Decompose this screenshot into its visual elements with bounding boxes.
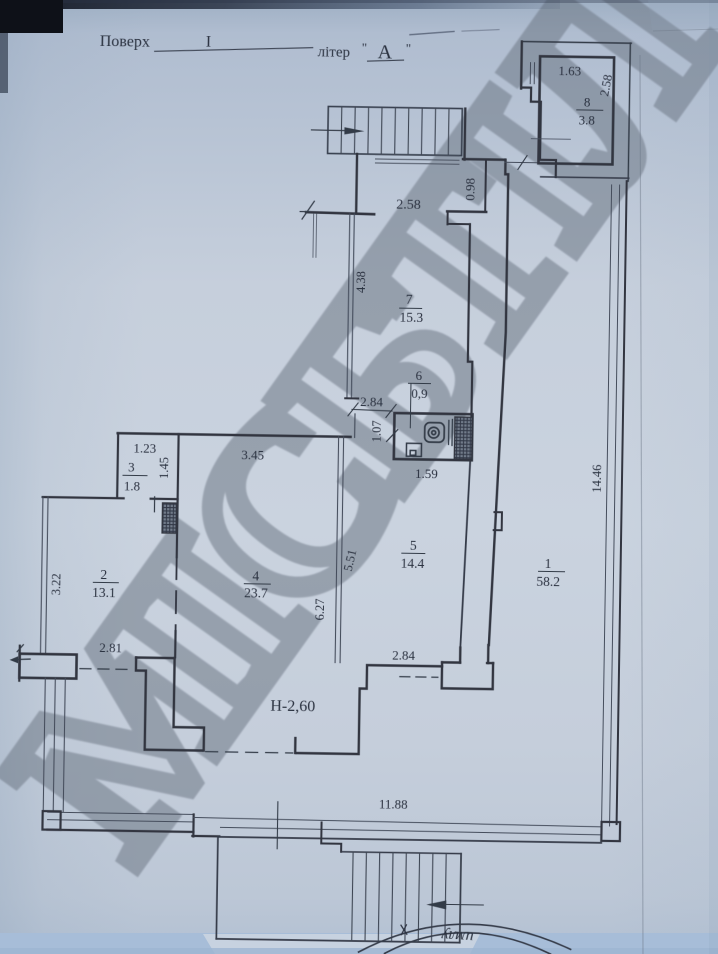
svg-text:Н-2,60: Н-2,60 [270, 698, 315, 716]
svg-text:1.07: 1.07 [370, 420, 384, 442]
svg-text:8: 8 [584, 94, 591, 109]
svg-text:6: 6 [415, 368, 422, 383]
svg-text:1.63: 1.63 [558, 63, 581, 78]
svg-text:7: 7 [406, 292, 413, 307]
svg-text:": " [362, 40, 368, 55]
svg-text:4: 4 [252, 568, 259, 583]
svg-text:2.58: 2.58 [396, 198, 421, 213]
svg-text:1: 1 [545, 556, 552, 571]
svg-text:літер: літер [318, 44, 351, 61]
svg-text:6.27: 6.27 [313, 598, 327, 620]
svg-text:1.23: 1.23 [133, 440, 156, 455]
svg-text:3.22: 3.22 [49, 573, 63, 595]
svg-text:3.45: 3.45 [241, 447, 264, 462]
svg-text:": " [406, 41, 412, 56]
svg-text:2.84: 2.84 [360, 394, 383, 409]
svg-text:23.7: 23.7 [244, 585, 268, 600]
svg-text:3: 3 [128, 459, 135, 474]
svg-text:13.1: 13.1 [92, 585, 116, 600]
svg-text:Поверх: Поверх [100, 33, 150, 51]
svg-text:58.2: 58.2 [536, 574, 560, 589]
svg-text:0,9: 0,9 [411, 386, 427, 401]
svg-text:имлу: имлу [440, 927, 474, 946]
svg-text:15.3: 15.3 [399, 310, 423, 325]
svg-text:1.45: 1.45 [157, 457, 171, 479]
svg-text:0.98: 0.98 [462, 178, 477, 201]
svg-text:2.84: 2.84 [392, 648, 415, 663]
svg-text:3.8: 3.8 [579, 112, 595, 127]
svg-text:1.8: 1.8 [124, 478, 140, 493]
svg-text:11.88: 11.88 [379, 796, 408, 811]
svg-text:14.4: 14.4 [401, 556, 425, 571]
svg-text:2: 2 [100, 567, 107, 582]
svg-text:14.46: 14.46 [590, 465, 604, 493]
svg-text:4.38: 4.38 [354, 271, 368, 293]
svg-text:1.59: 1.59 [415, 466, 438, 481]
svg-text:I: I [206, 34, 212, 51]
svg-text:5: 5 [410, 538, 417, 553]
svg-text:2.81: 2.81 [99, 640, 122, 655]
